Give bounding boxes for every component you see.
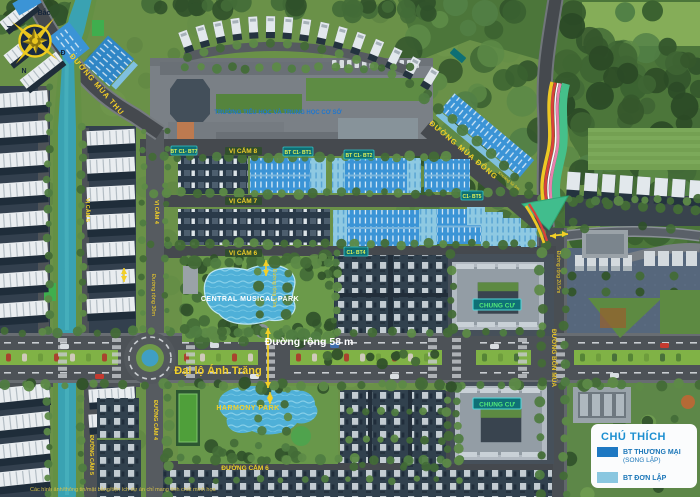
svg-text:VỊ CẮM 5: VỊ CẮM 5: [84, 198, 92, 222]
svg-text:TRƯỜNG TIỂU HỌC VÀ TRUNG HỌC C: TRƯỜNG TIỂU HỌC VÀ TRUNG HỌC CƠ SỞ: [214, 108, 342, 116]
svg-text:N: N: [21, 68, 26, 75]
svg-text:BT C1- BT7: BT C1- BT7: [171, 149, 198, 155]
svg-text:C1- BT4: C1- BT4: [347, 250, 366, 256]
svg-text:VỊ CẮM 8: VỊ CẮM 8: [229, 146, 258, 155]
svg-text:BT C1- BT1: BT C1- BT1: [285, 150, 312, 156]
svg-text:Đường rộng 30m: Đường rộng 30m: [150, 274, 156, 317]
svg-text:ĐƯỜNG CẮM 6: ĐƯỜNG CẮM 6: [221, 463, 269, 472]
svg-text:Bắc: Bắc: [38, 8, 51, 17]
svg-text:CHÚ THÍCH: CHÚ THÍCH: [601, 430, 666, 443]
svg-text:VỊ CẮM 7: VỊ CẮM 7: [229, 196, 258, 205]
svg-text:BT ĐƠN LẬP: BT ĐƠN LẬP: [623, 473, 667, 482]
svg-text:CENTRAL MUSICAL PARK: CENTRAL MUSICAL PARK: [201, 296, 299, 303]
svg-text:Các hình ảnh/thông tin/mặt bằn: Các hình ảnh/thông tin/mặt bằng/tiện ích…: [30, 486, 217, 493]
svg-text:HARMONY PARK: HARMONY PARK: [216, 405, 279, 412]
svg-text:ĐƯỜNG CẮM 4: ĐƯỜNG CẮM 4: [152, 400, 160, 441]
svg-text:BT C1- BT2: BT C1- BT2: [346, 153, 373, 159]
svg-text:Đ: Đ: [60, 50, 65, 57]
svg-text:VỊ CẮM 4: VỊ CẮM 4: [153, 200, 161, 225]
svg-text:CHUNG CƯ: CHUNG CƯ: [479, 402, 515, 409]
svg-text:C1- BT5: C1- BT5: [463, 194, 482, 200]
svg-text:VỊ CẮM 6: VỊ CẮM 6: [229, 248, 258, 257]
svg-text:Đại lộ Ánh Trăng: Đại lộ Ánh Trăng: [174, 364, 261, 377]
svg-text:ĐƯỜNG CẮM 5: ĐƯỜNG CẮM 5: [88, 435, 96, 475]
svg-text:Đường rộng 20.5m: Đường rộng 20.5m: [555, 251, 561, 293]
svg-text:Đường rộng 58 m: Đường rộng 58 m: [265, 336, 354, 348]
svg-text:(SONG LẬP): (SONG LẬP): [623, 455, 661, 464]
svg-text:BT THƯƠNG MẠI: BT THƯƠNG MẠI: [623, 449, 681, 456]
svg-text:T: T: [7, 26, 12, 33]
svg-text:CHUNG CƯ: CHUNG CƯ: [479, 303, 515, 310]
